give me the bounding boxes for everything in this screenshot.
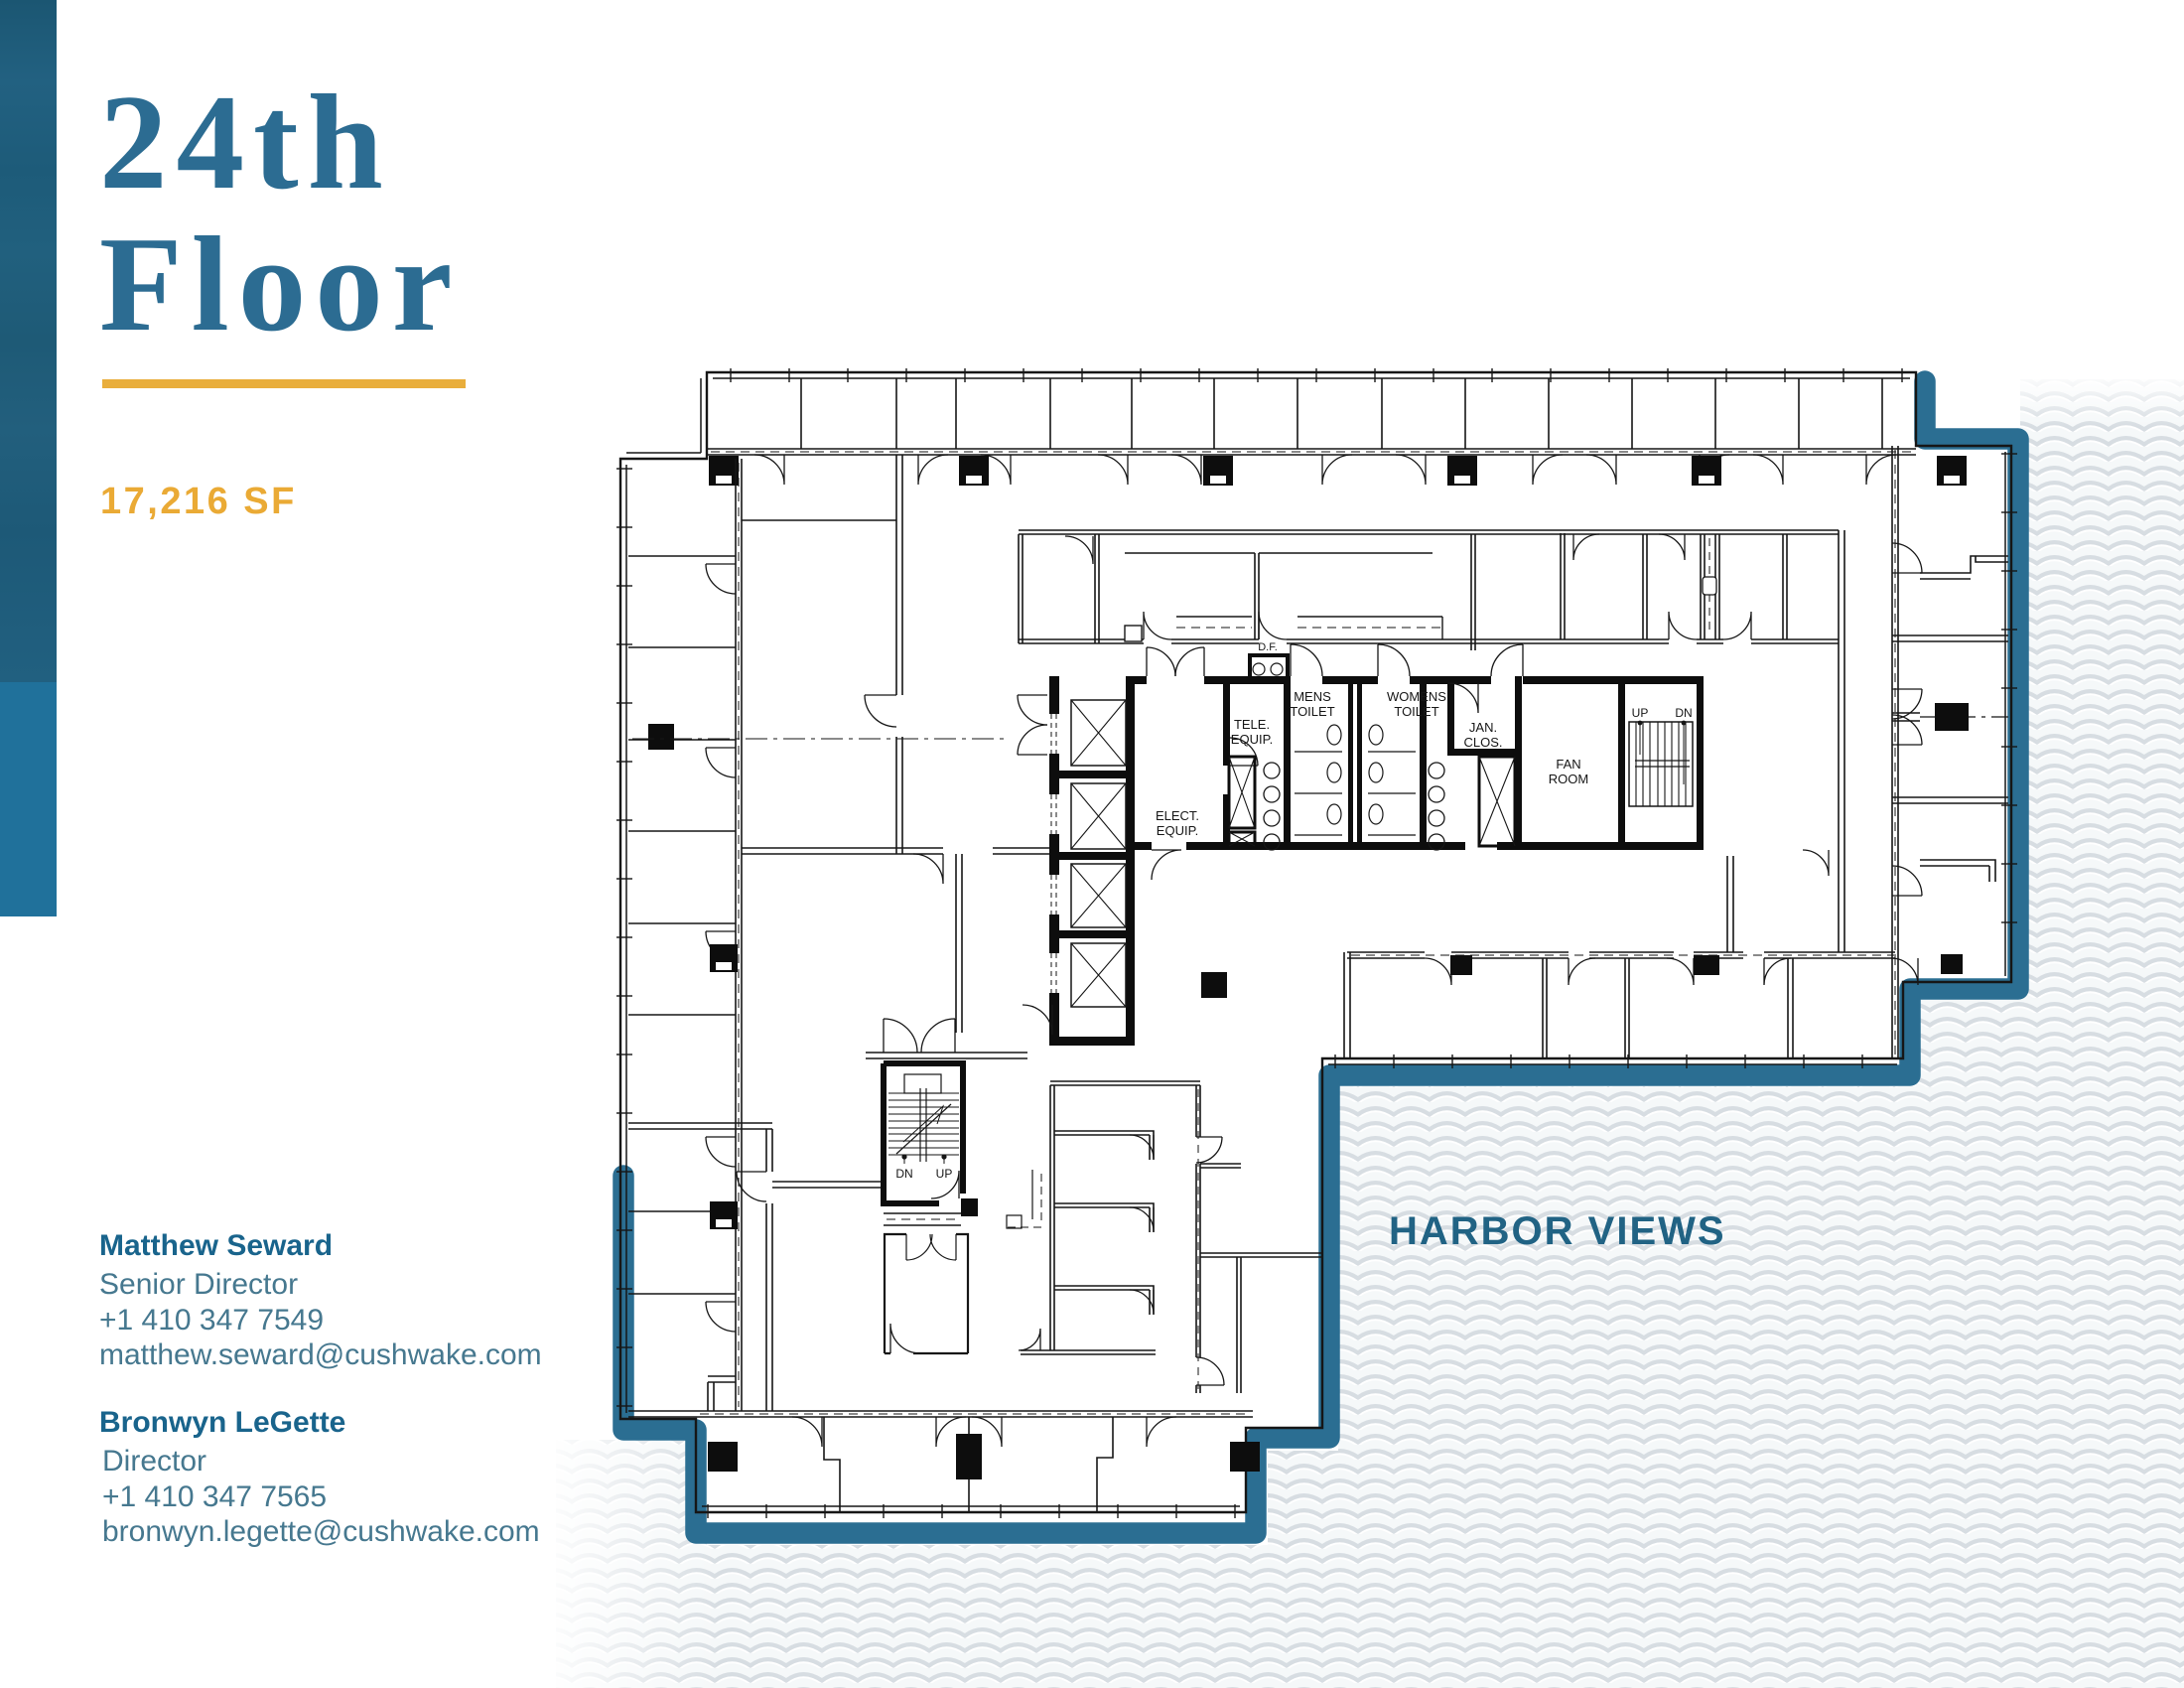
svg-text:ROOM: ROOM	[1549, 772, 1588, 786]
svg-text:EQUIP.: EQUIP.	[1231, 732, 1273, 747]
svg-text:UP: UP	[936, 1167, 953, 1181]
svg-text:JAN.: JAN.	[1469, 720, 1497, 735]
svg-text:TOILET: TOILET	[1394, 704, 1438, 719]
svg-text:UP: UP	[1632, 706, 1649, 720]
svg-text:FAN: FAN	[1556, 757, 1580, 772]
svg-text:DN: DN	[1675, 706, 1692, 720]
svg-text:DN: DN	[895, 1167, 912, 1181]
svg-text:CLOS.: CLOS.	[1463, 735, 1502, 750]
svg-text:TELE.: TELE.	[1234, 717, 1270, 732]
svg-text:EQUIP.: EQUIP.	[1157, 823, 1198, 838]
svg-text:ELECT.: ELECT.	[1156, 808, 1199, 823]
svg-text:WOMENS: WOMENS	[1387, 689, 1446, 704]
svg-text:TOILET: TOILET	[1290, 704, 1334, 719]
svg-text:D.F.: D.F.	[1258, 641, 1278, 653]
svg-text:MENS: MENS	[1294, 689, 1331, 704]
